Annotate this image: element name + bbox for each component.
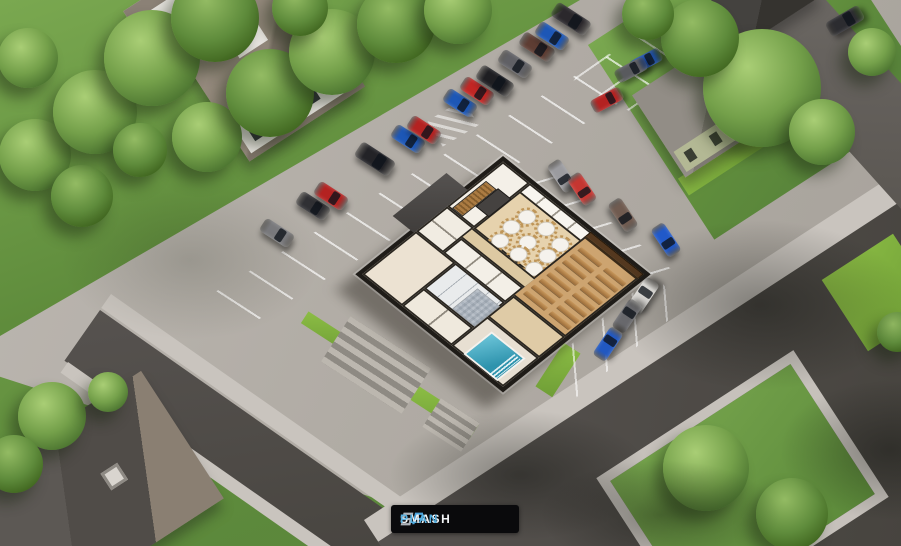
tree: [789, 99, 855, 165]
car-windshield: [842, 11, 857, 27]
watermark-badge: SMASHPLAN: [391, 505, 519, 533]
tree: [88, 372, 128, 412]
parked-car: [354, 141, 397, 177]
car-windshield: [491, 75, 506, 91]
car-windshield: [512, 59, 526, 74]
car-windshield: [534, 42, 548, 57]
parked-car: [607, 197, 638, 234]
tree: [848, 28, 896, 76]
aerial-render-scene: SMASHPLAN: [0, 0, 901, 546]
car-windshield: [549, 31, 563, 46]
car-windshield: [421, 125, 435, 140]
car-windshield: [604, 91, 616, 105]
car-windshield: [474, 86, 488, 101]
car-windshield: [405, 134, 419, 149]
tree: [113, 123, 167, 177]
parked-car: [497, 48, 534, 79]
car-windshield: [328, 191, 342, 206]
brand-text-plan: PLAN: [400, 513, 439, 525]
parked-car: [589, 86, 625, 114]
car-windshield: [577, 185, 592, 199]
car-windshield: [371, 153, 387, 170]
lot-shading: [60, 180, 320, 340]
car-windshield: [310, 201, 324, 216]
tree-shadow: [610, 220, 901, 390]
car-windshield: [567, 13, 582, 29]
car-windshield: [457, 98, 471, 113]
car-windshield: [628, 61, 640, 75]
car-windshield: [603, 334, 618, 348]
tree: [0, 28, 58, 88]
car-windshield: [618, 211, 633, 225]
